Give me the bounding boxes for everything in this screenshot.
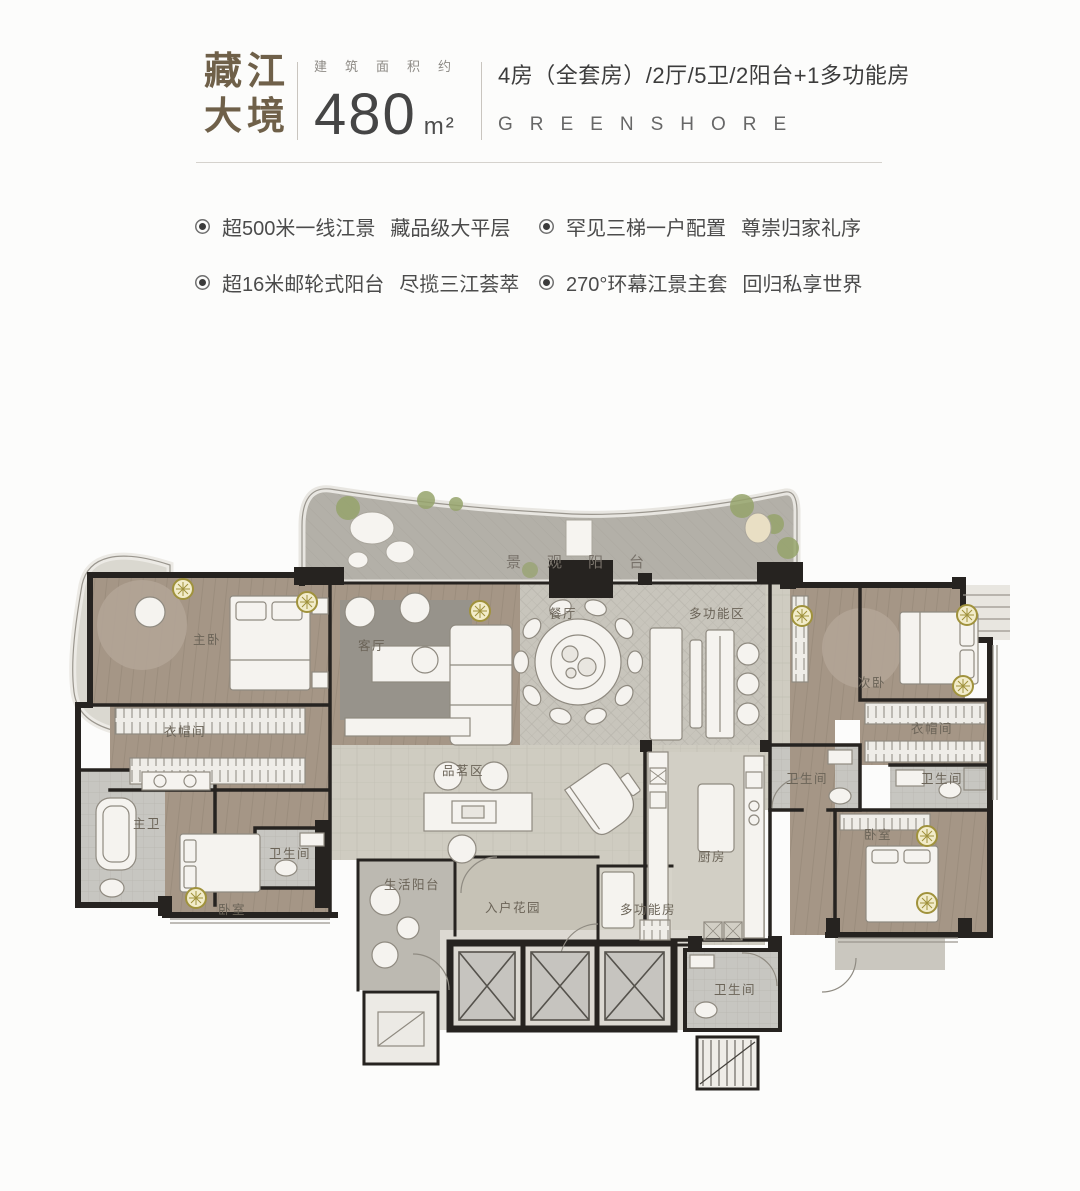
label-bath-left: 卫生间 [269,847,311,861]
label-bath-lobby: 卫生间 [714,983,756,997]
label-service-balcony: 生活阳台 [384,877,440,892]
floor-plan: 景观阳台 主卧 衣帽间 客厅 餐厅 多功能区 次卧 衣帽间 卫生间 卫生间 主卫… [0,0,1080,1191]
label-multi-room: 多功能房 [620,902,676,917]
poster-page: 藏江 大境 建筑面积约 480m² 4房（全套房）/2厅/5卫/2阳台+1多功能… [0,0,1080,1191]
label-closet-right: 衣帽间 [911,721,953,736]
elevators [459,952,664,1020]
label-view-balcony: 景观阳台 [506,554,670,571]
label-multi-zone: 多功能区 [689,607,745,621]
label-closet-master: 衣帽间 [164,724,206,739]
label-living-room: 客厅 [358,638,386,653]
label-tea-zone: 品茗区 [442,764,484,778]
label-entry-garden: 入户花园 [485,900,541,915]
label-bedroom-right: 卧室 [864,827,892,842]
label-bath-mid: 卫生间 [786,772,828,786]
label-master-bedroom: 主卧 [193,633,221,647]
label-bedroom-left: 卧室 [218,902,246,917]
label-second-bedroom: 次卧 [858,676,886,690]
label-master-bath: 主卫 [133,817,161,831]
label-bath-right: 卫生间 [921,772,963,786]
label-dining-room: 餐厅 [549,606,577,621]
label-kitchen: 厨房 [698,849,726,864]
